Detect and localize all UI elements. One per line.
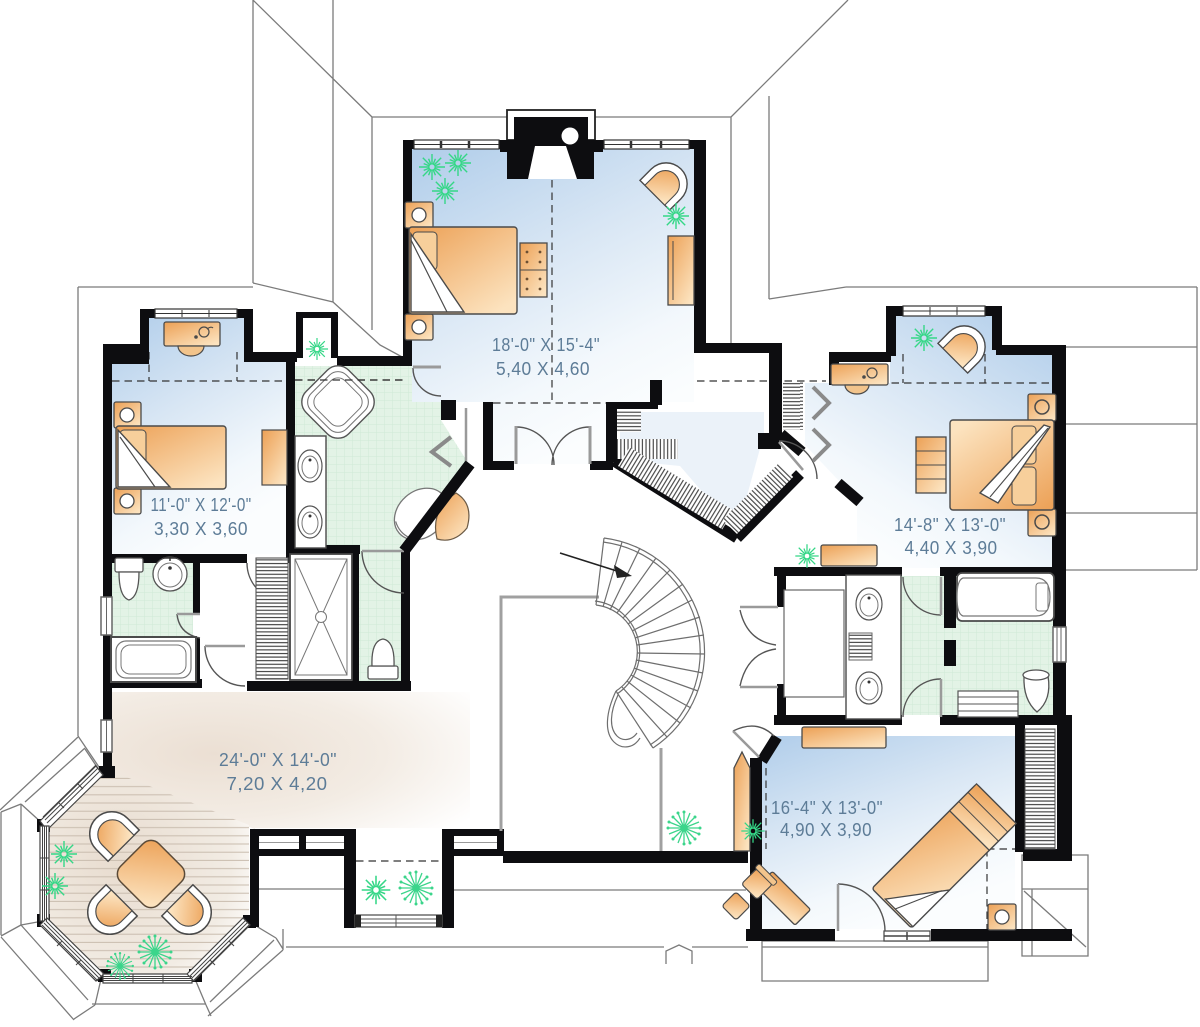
svg-text:4,40 X 3,90: 4,40 X 3,90 xyxy=(905,537,998,558)
svg-text:11'-0" X 12'-0": 11'-0" X 12'-0" xyxy=(151,494,252,515)
svg-text:16'-4" X 13'-0": 16'-4" X 13'-0" xyxy=(771,797,883,818)
svg-text:7,20 X 4,20: 7,20 X 4,20 xyxy=(227,773,328,794)
svg-text:5,40 X 4,60: 5,40 X 4,60 xyxy=(496,358,590,379)
svg-text:14'-8" X 13'-0": 14'-8" X 13'-0" xyxy=(894,514,1006,535)
svg-text:24'-0" X 14'-0": 24'-0" X 14'-0" xyxy=(219,749,337,770)
svg-text:18'-0" X 15'-4": 18'-0" X 15'-4" xyxy=(492,334,600,355)
svg-text:4,90 X 3,90: 4,90 X 3,90 xyxy=(780,819,872,840)
svg-text:3,30 X 3,60: 3,30 X 3,60 xyxy=(154,518,248,539)
